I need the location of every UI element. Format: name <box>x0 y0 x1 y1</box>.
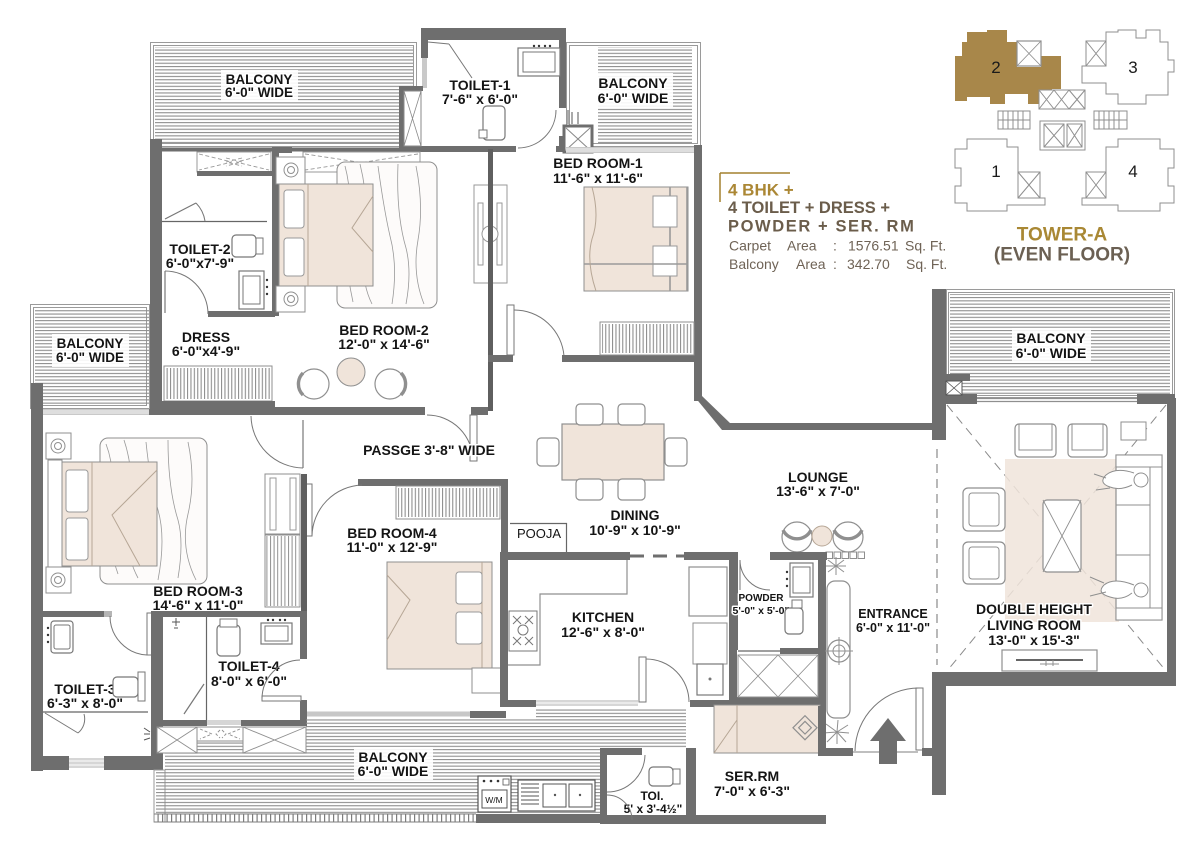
svg-text:LIVING ROOM: LIVING ROOM <box>987 617 1081 633</box>
svg-text:6'-0" WIDE: 6'-0" WIDE <box>56 350 124 365</box>
svg-text:TOI.: TOI. <box>640 789 663 803</box>
svg-text:6'-0" x 11'-0": 6'-0" x 11'-0" <box>856 621 930 635</box>
svg-text:12'-0" x 14'-6": 12'-0" x 14'-6" <box>338 336 430 352</box>
svg-text:4 TOILET + DRESS +: 4 TOILET + DRESS + <box>728 199 890 217</box>
svg-text:TOWER-A: TOWER-A <box>1017 225 1108 246</box>
svg-text:4: 4 <box>1128 162 1137 181</box>
svg-text:6'-0"x7'-9": 6'-0"x7'-9" <box>166 255 234 271</box>
svg-text:6'-0" WIDE: 6'-0" WIDE <box>225 85 293 100</box>
svg-text:W/M: W/M <box>485 795 502 805</box>
svg-text:11'-6" x 11'-6": 11'-6" x 11'-6" <box>553 170 643 186</box>
svg-text:TOILET-4: TOILET-4 <box>218 658 279 674</box>
svg-text:14'-6" x 11'-0": 14'-6" x 11'-0" <box>153 597 244 613</box>
svg-text:2: 2 <box>991 58 1000 77</box>
svg-text:6'-0" WIDE: 6'-0" WIDE <box>1016 345 1087 361</box>
svg-text:5' x 3'-4½": 5' x 3'-4½" <box>624 802 683 816</box>
svg-text:5'-0" x 5'-0": 5'-0" x 5'-0" <box>733 605 790 617</box>
svg-text:POWDER + SER. RM: POWDER + SER. RM <box>728 218 915 236</box>
svg-text:BALCONY: BALCONY <box>57 336 124 351</box>
svg-text:1: 1 <box>991 162 1000 181</box>
svg-text:4 BHK +: 4 BHK + <box>728 181 794 200</box>
svg-text:POOJA: POOJA <box>517 526 561 541</box>
svg-text:DINING: DINING <box>611 507 660 523</box>
svg-text:10'-9" x 10'-9": 10'-9" x 10'-9" <box>589 522 681 538</box>
svg-text:7'-0" x 6'-3": 7'-0" x 6'-3" <box>714 783 790 799</box>
svg-text:3: 3 <box>1128 58 1137 77</box>
svg-text:12'-6" x 8'-0": 12'-6" x 8'-0" <box>561 624 645 640</box>
svg-text:(EVEN FLOOR): (EVEN FLOOR) <box>994 245 1130 266</box>
svg-text:DOUBLE HEIGHT: DOUBLE HEIGHT <box>976 601 1092 617</box>
svg-text:6'-0" WIDE: 6'-0" WIDE <box>598 90 669 106</box>
svg-text:SER.RM: SER.RM <box>725 768 779 784</box>
svg-text:BALCONY: BALCONY <box>1016 330 1086 346</box>
svg-text:POWDER: POWDER <box>739 593 785 604</box>
svg-text:11'-0" x 12'-9": 11'-0" x 12'-9" <box>347 539 438 555</box>
svg-text:BALCONY: BALCONY <box>598 75 668 91</box>
svg-text:BED ROOM-1: BED ROOM-1 <box>553 155 643 171</box>
svg-text:6'-0" WIDE: 6'-0" WIDE <box>358 763 429 779</box>
svg-text:7'-6" x 6'-0": 7'-6" x 6'-0" <box>442 91 518 107</box>
svg-text:13'-6" x 7'-0": 13'-6" x 7'-0" <box>776 483 860 499</box>
svg-text:6'-0"x4'-9": 6'-0"x4'-9" <box>172 343 240 359</box>
svg-text:6'-3" x 8'-0": 6'-3" x 8'-0" <box>47 695 123 711</box>
svg-text:KITCHEN: KITCHEN <box>572 609 634 625</box>
svg-text:ENTRANCE: ENTRANCE <box>858 607 927 621</box>
svg-text:13'-0" x 15'-3": 13'-0" x 15'-3" <box>988 632 1080 648</box>
svg-text:8'-0" x 6'-0": 8'-0" x 6'-0" <box>211 673 287 689</box>
svg-text:PASSGE 3'-8" WIDE: PASSGE 3'-8" WIDE <box>363 442 495 458</box>
